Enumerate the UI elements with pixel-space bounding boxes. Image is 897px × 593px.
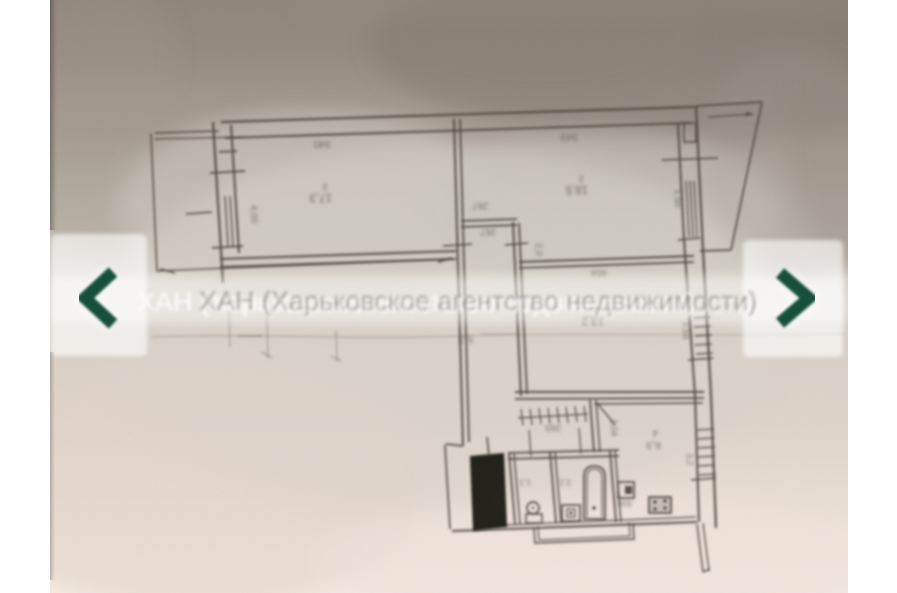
svg-text:ХАН (Харьковское агентство нед: ХАН (Харьковское агентство недвижимости) xyxy=(202,289,760,319)
